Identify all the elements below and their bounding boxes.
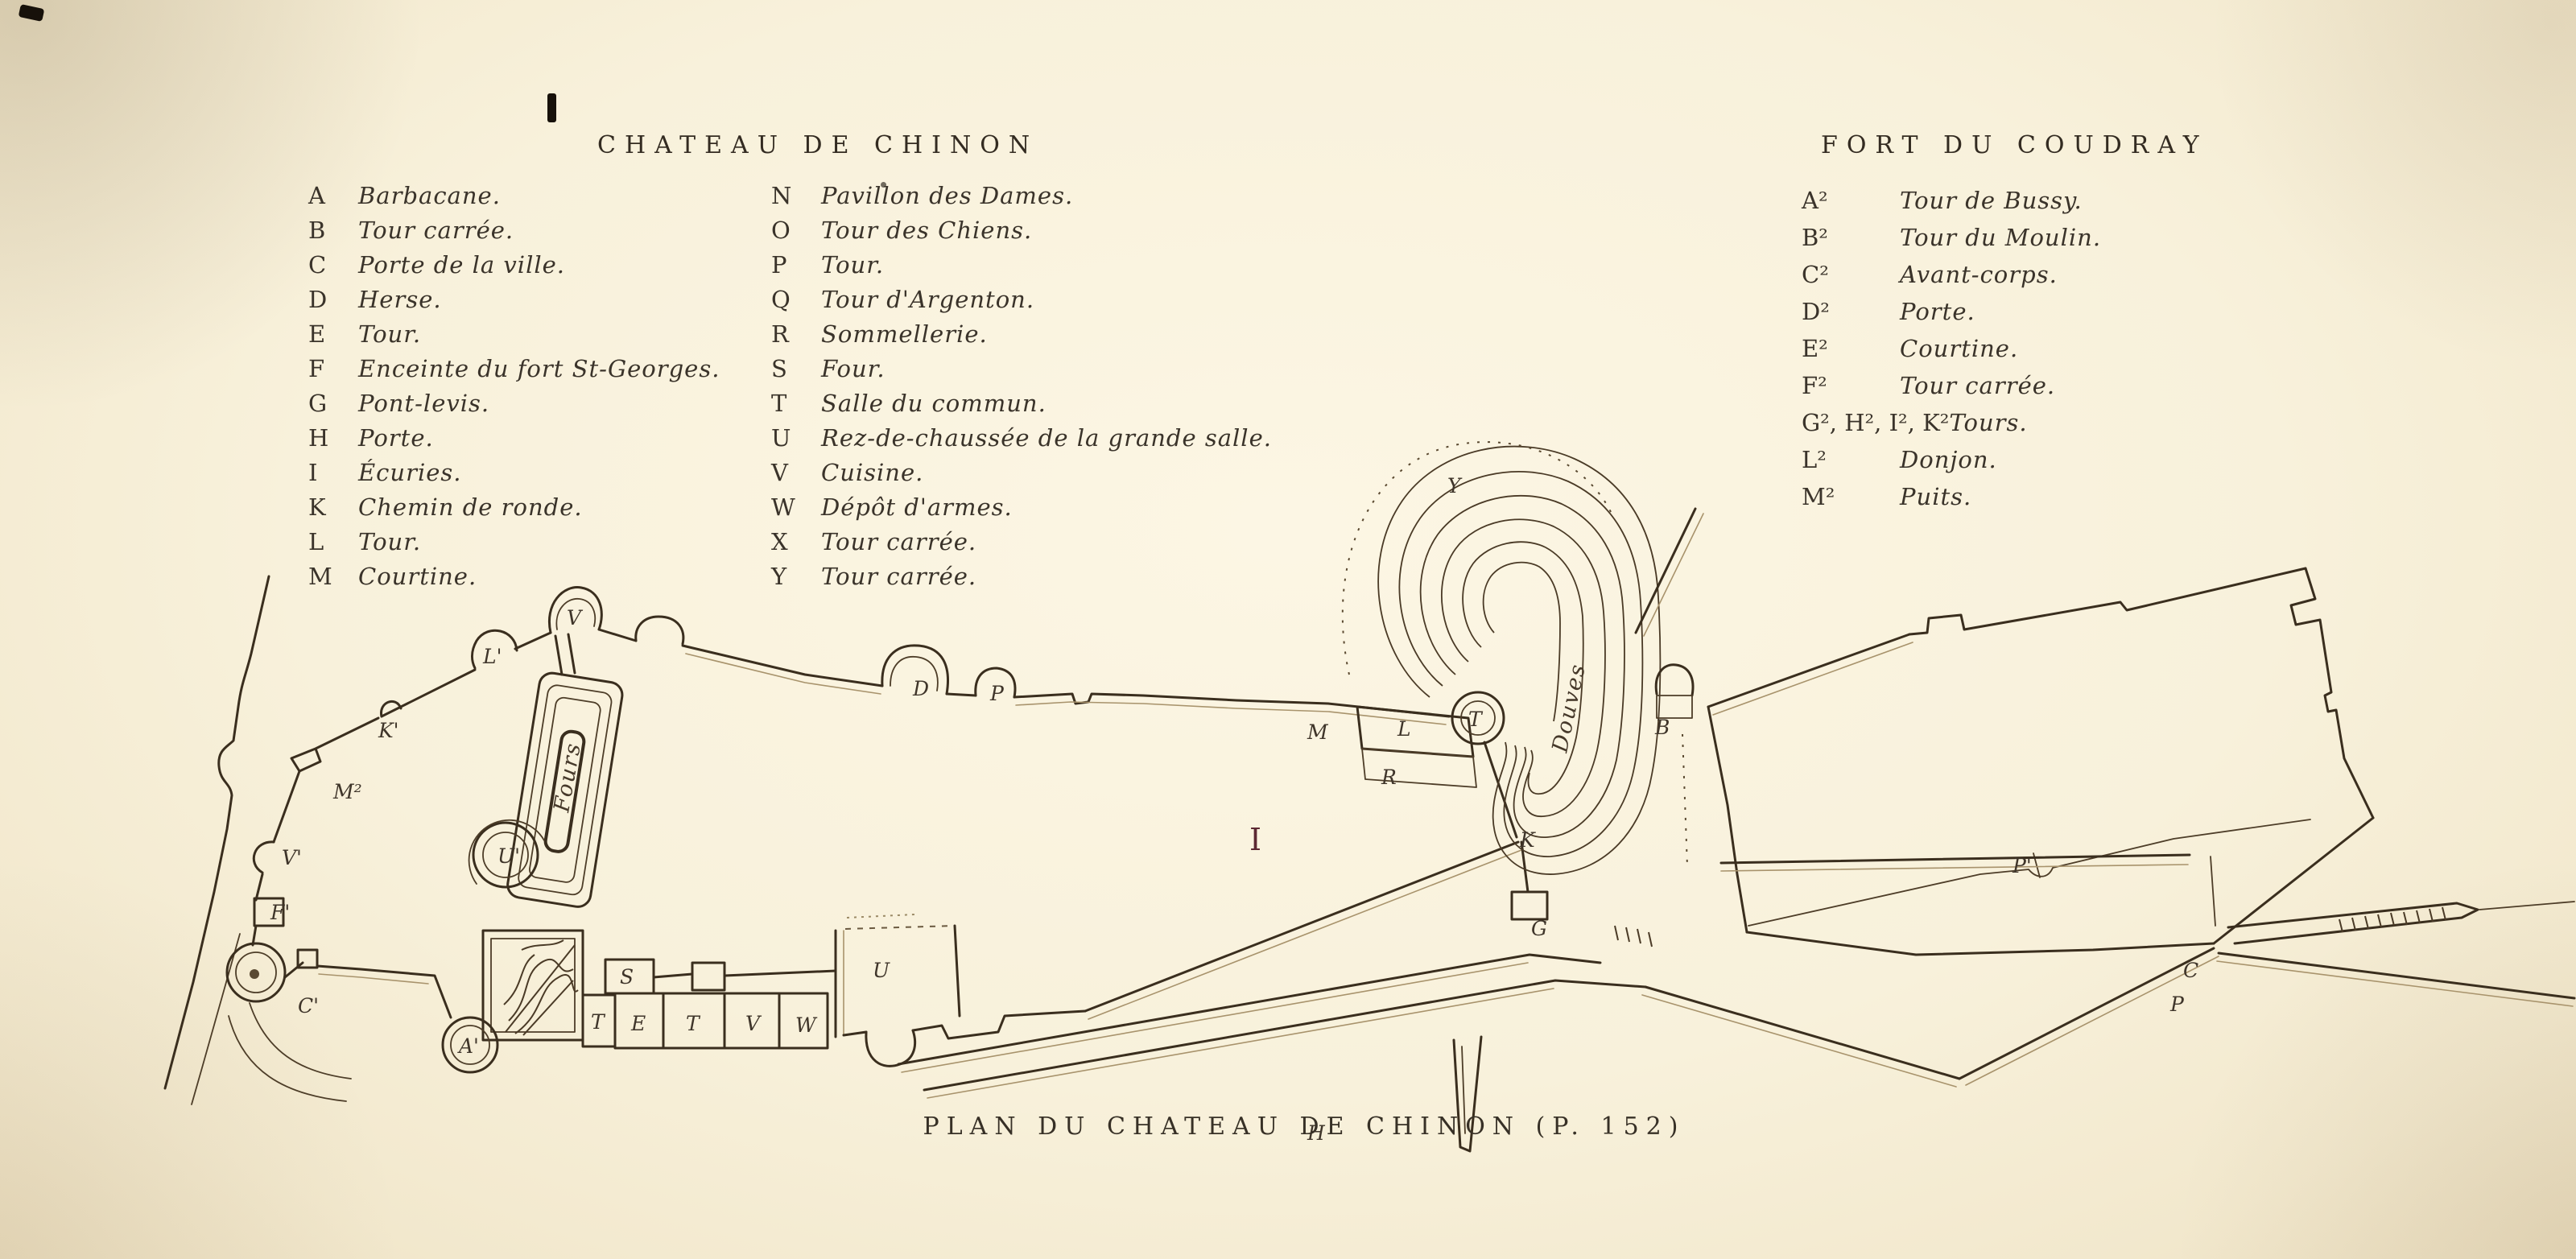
plan-letter-C': C' bbox=[298, 994, 319, 1018]
plan-letter-group: VL'K'M²V'F'C'A'U'FoursSTETVWUDPMLRTIKGHY… bbox=[270, 474, 2198, 1145]
plan-letter-P': P' bbox=[2012, 854, 2032, 877]
plan-letter-U': U' bbox=[497, 844, 520, 868]
plan-letter-U: U bbox=[873, 959, 890, 982]
plan-letter-F': F' bbox=[270, 901, 290, 924]
plan-letter-D: D bbox=[912, 677, 929, 700]
plan-letter-K: K bbox=[1519, 828, 1536, 852]
plan-letter-P: P bbox=[2169, 993, 2185, 1016]
plan-letter-E: E bbox=[630, 1012, 646, 1035]
plan-letter-S: S bbox=[620, 965, 634, 989]
plan-letter-A': A' bbox=[457, 1034, 479, 1058]
plan-letter-T: T bbox=[686, 1012, 701, 1035]
plan-letter-V: V bbox=[567, 606, 584, 629]
plan-letter-B: B bbox=[1654, 716, 1670, 739]
plan-letter-Douves: Douves bbox=[1547, 661, 1591, 755]
scanned-plate-page: CHATEAU DE CHINON FORT DU COUDRAY ABarba… bbox=[0, 0, 2576, 1259]
plan-labels-layer: VL'K'M²V'F'C'A'U'FoursSTETVWUDPMLRTIKGHY… bbox=[0, 0, 2576, 1259]
plan-letter-V': V' bbox=[282, 846, 302, 869]
plan-letter-R: R bbox=[1381, 766, 1397, 789]
plate-caption: PLAN DU CHATEAU DE CHINON (P. 152) bbox=[910, 1112, 1699, 1141]
plan-letter-W: W bbox=[795, 1013, 818, 1037]
plan-letter-G: G bbox=[1531, 917, 1547, 940]
plan-letter-I: I bbox=[1249, 822, 1261, 857]
plan-letter-T: T bbox=[591, 1010, 606, 1034]
plan-letter-Fours: Fours bbox=[549, 740, 586, 815]
plan-letter-P: P bbox=[989, 682, 1005, 705]
plan-letter-C: C bbox=[2183, 959, 2198, 982]
plan-letter-L: L bbox=[1397, 717, 1411, 741]
plan-letter-M: M bbox=[1307, 720, 1329, 744]
plan-letter-K': K' bbox=[378, 719, 399, 742]
plan-letter-Y: Y bbox=[1447, 474, 1463, 497]
plan-letter-V: V bbox=[745, 1012, 762, 1035]
plan-letter-T: T bbox=[1468, 708, 1484, 731]
plan-letter-L': L' bbox=[482, 645, 502, 668]
plan-letter-M²: M² bbox=[332, 780, 362, 803]
